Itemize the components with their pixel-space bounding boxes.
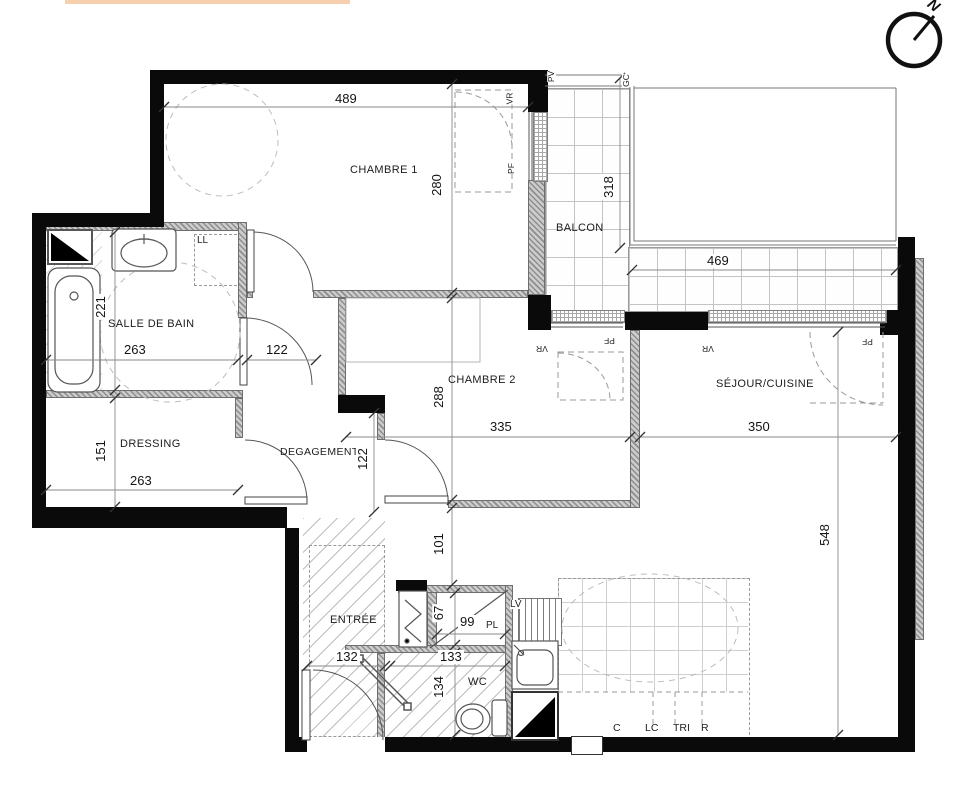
kitchen-sink [512, 641, 558, 689]
label-lc: LC [645, 724, 658, 733]
balcony-railing [545, 75, 896, 245]
room-label-degagement: DEGAGEMENT [280, 446, 359, 458]
wc-door [356, 655, 411, 710]
label-vr-chambre1: VR [505, 93, 514, 105]
label-vr-chambre2: VR [536, 344, 548, 353]
dim-wc-width: 133 [438, 650, 464, 664]
label-cuisiniere: C [613, 724, 621, 733]
dim-placard-depth: 67 [432, 604, 446, 622]
label-tri: TRI [673, 724, 690, 733]
dim-passage: 101 [432, 531, 446, 557]
duct-shaft-kitchen [512, 692, 558, 740]
room-label-wc: WC [468, 676, 487, 688]
dim-wc-depth: 134 [432, 674, 446, 700]
dim-chambre1-width: 489 [333, 92, 359, 106]
room-label-chambre1: CHAMBRE 1 [350, 164, 418, 176]
label-pf-chambre1: PF [507, 163, 516, 174]
dim-dressing-depth: 151 [94, 438, 108, 464]
floor-plan: CHAMBRE 1 BALCON SALLE DE BAIN CHAMBRE 2… [0, 0, 966, 800]
label-vr-sejour: VR [702, 344, 714, 353]
duct-shaft-sdb [48, 230, 92, 264]
dim-chambre1-depth: 280 [430, 172, 444, 198]
dimension-lines [41, 73, 901, 740]
room-label-entree: ENTRÉE [330, 614, 377, 626]
dim-chambre2-depth: 288 [432, 384, 446, 410]
dim-dressing-width: 263 [128, 474, 154, 488]
room-label-dressing: DRESSING [120, 438, 181, 450]
washbasin [112, 229, 176, 271]
label-placard: PL [486, 621, 498, 630]
room-label-salle-de-bain: SALLE DE BAIN [108, 318, 195, 330]
label-lave-vaisselle: LV [510, 600, 522, 609]
label-gc: GC [622, 74, 631, 87]
room-label-sejour-cuisine: SÉJOUR/CUISINE [716, 378, 814, 390]
room-label-balcon: BALCON [556, 222, 604, 234]
dim-sdb-width: 263 [122, 343, 148, 357]
north-compass [888, 14, 940, 66]
label-refrigerateur: R [701, 724, 709, 733]
dim-placard-width: 99 [458, 615, 476, 629]
chambre2-wardrobe [346, 298, 480, 362]
toilet [456, 700, 507, 736]
label-pf-chambre2: PF [604, 336, 615, 345]
dim-balcon-width: 469 [705, 254, 731, 268]
label-pf-sejour: PF [862, 337, 873, 346]
dim-chambre2-width: 335 [488, 420, 514, 434]
label-lave-linge: LL [197, 236, 208, 245]
dim-sejour-width: 350 [746, 420, 772, 434]
window-glazing [529, 112, 885, 327]
dim-sdb-depth: 221 [94, 294, 108, 320]
window-swings-dashed [455, 90, 883, 405]
label-pv: PV [547, 71, 556, 82]
dim-balcon-depth: 318 [602, 174, 616, 200]
room-label-chambre2: CHAMBRE 2 [448, 374, 516, 386]
dim-degagement-width: 122 [356, 446, 370, 472]
bathtub [48, 268, 100, 392]
dim-sdb-door: 122 [264, 343, 290, 357]
dim-sejour-depth: 548 [818, 522, 832, 548]
water-heater-placard [399, 590, 508, 648]
dim-entree-width: 132 [334, 650, 360, 664]
